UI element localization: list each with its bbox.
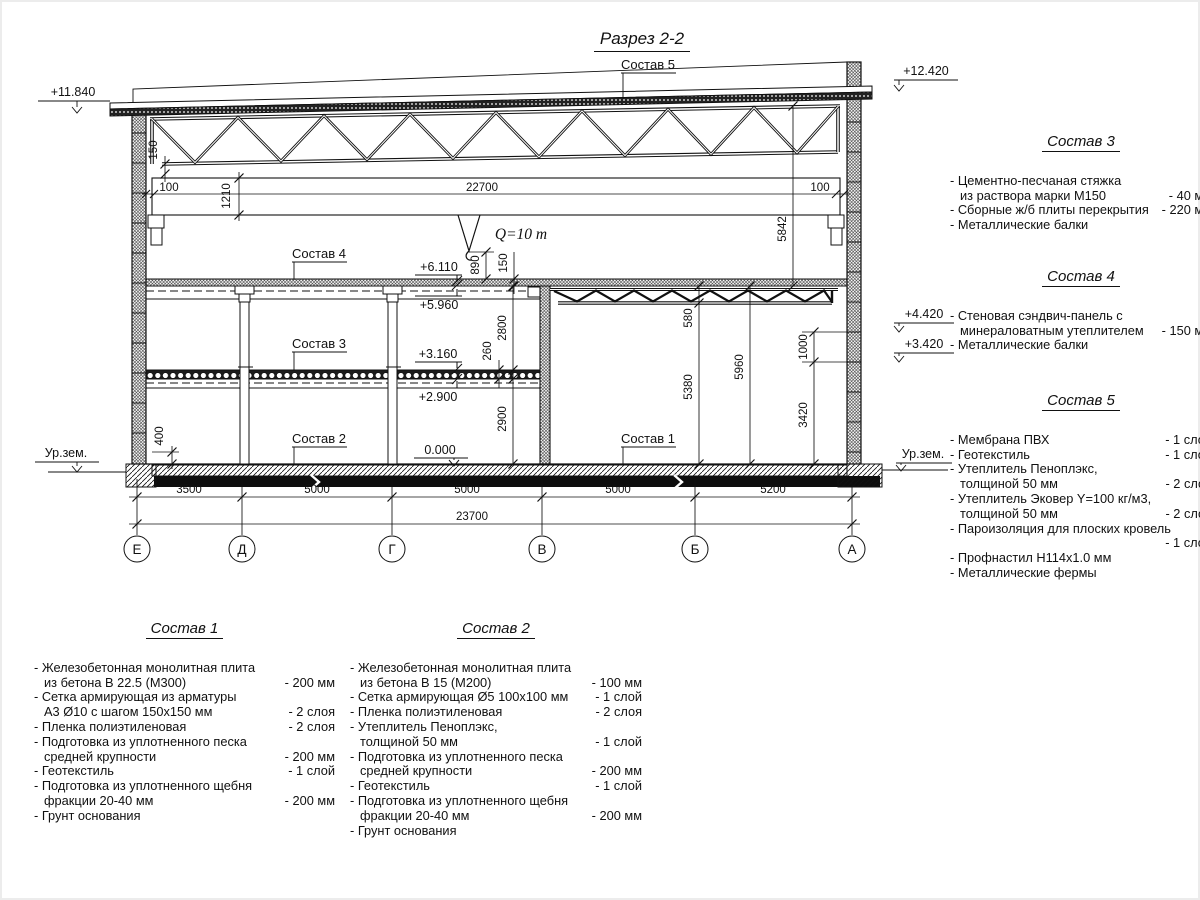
ground-slab-hatched (152, 465, 847, 476)
list-item: - Металлические балки (950, 218, 1200, 233)
list-item: - Сетка армирующая Ø5 100х100 мм- 1 слой (350, 690, 642, 705)
elev-roof-right: +12.420 (903, 64, 949, 78)
axis-label-A: А (847, 542, 856, 557)
elev-5960: +5.960 (420, 298, 459, 312)
composition-list-4: Состав 4 - Стеновая сэндвич-панель с мин… (950, 270, 1200, 353)
dim-3420: 3420 (798, 402, 810, 428)
dim-crane-gap-left: 100 (159, 182, 178, 194)
column-cap-D-2 (239, 294, 250, 302)
dim-260: 260 (482, 341, 494, 360)
dim-150-mid: 150 (498, 253, 510, 272)
footing-right (838, 464, 882, 487)
wall-B-corbel (528, 287, 540, 297)
ground-level-right: Ур.зем. (902, 447, 944, 461)
crane-console-right-1 (828, 215, 844, 228)
column-axis-G (388, 286, 397, 464)
list-item: - Пленка полиэтиленовая- 2 слоя (34, 720, 335, 735)
dim-crane-length: 22700 (466, 182, 498, 194)
dim-1000: 1000 (798, 334, 810, 360)
leader-sostav1: Состав 1 (621, 431, 675, 446)
list-item: - Профнастил Н114х1.0 мм (950, 551, 1200, 566)
dim-span-4: 5000 (605, 484, 631, 496)
list-item: - Мембрана ПВХ- 1 слой (950, 433, 1200, 448)
list-item: - Пароизоляция для плоских кровель- 1 сл… (950, 522, 1200, 552)
composition-4-title: Состав 4 (950, 270, 1200, 287)
column-axis-D (240, 286, 249, 464)
crane-console-right-2 (831, 228, 842, 245)
dim-1210: 1210 (221, 183, 233, 209)
slab-6110 (146, 279, 847, 286)
dim-5842: 5842 (777, 216, 789, 242)
axis-label-B: Б (691, 542, 700, 557)
axis-label-D: Д (237, 542, 246, 557)
list-item: - Утеплитель Пеноплэкс, толщиной 50 мм- … (350, 720, 642, 750)
list-item: - Утеплитель Пеноплэкс, толщиной 50 мм- … (950, 462, 1200, 492)
dim-crane-gap-right: 100 (810, 182, 829, 194)
list-item: - Грунт основания (350, 824, 642, 839)
dim-5380: 5380 (683, 374, 695, 400)
list-item: - Железобетонная монолитная плита из бет… (34, 661, 335, 691)
elev-arrow-roof-left (38, 101, 110, 113)
elev-arrow-wall-lower (894, 353, 954, 362)
dim-2900: 2900 (497, 406, 509, 432)
list-item: - Геотекстиль- 1 слой (950, 448, 1200, 463)
list-item: - Подготовка из уплотненного песка средн… (34, 735, 335, 765)
list-item: - Железобетонная монолитная плита из бет… (350, 661, 642, 691)
elev-6110: +6.110 (420, 260, 458, 274)
leader-lines (292, 73, 676, 465)
elev-zero: 0.000 (424, 443, 455, 457)
leader-sostav5: Состав 5 (621, 57, 675, 72)
low-truss-webs (554, 291, 832, 303)
list-item: - Подготовка из уплотненного песка средн… (350, 750, 642, 780)
list-item: - Геотекстиль- 1 слой (34, 764, 335, 779)
dim-890: 890 (470, 255, 482, 274)
crane-console-left-2 (151, 228, 162, 245)
elev-wall-upper: +4.420 (905, 307, 944, 321)
leader-sostav2: Состав 2 (292, 431, 346, 446)
list-item: - Геотекстиль- 1 слой (350, 779, 642, 794)
list-item: - Сборные ж/б плиты перекрытия- 220 мм (950, 203, 1200, 218)
elev-arrow-ground-left (35, 462, 99, 472)
main-truss (150, 106, 840, 164)
dim-span-2: 5000 (304, 484, 330, 496)
interior-wall-axis-B (540, 286, 550, 464)
elev-roof-left: +11.840 (51, 85, 96, 99)
ground-level-left: Ур.зем. (45, 446, 87, 460)
list-item: - Подготовка из уплотненного щебня фракц… (34, 779, 335, 809)
crane-hook (458, 215, 494, 260)
dim-150-left: 150 (148, 140, 160, 159)
axis-label-E: Е (132, 542, 141, 557)
crane-console-left-1 (148, 215, 164, 228)
elev-2900: +2.900 (419, 390, 458, 404)
axis-bubbles (124, 536, 865, 562)
dim-400: 400 (154, 426, 166, 445)
dim-total: 23700 (456, 511, 488, 523)
composition-1-title: Состав 1 (34, 622, 335, 639)
list-item: - Подготовка из уплотненного щебня фракц… (350, 794, 642, 824)
axis-extension-lines (137, 479, 852, 535)
crane-capacity-label: Q=10 т (495, 226, 547, 243)
leader-sostav3: Состав 3 (292, 336, 346, 351)
dim-2800: 2800 (497, 315, 509, 341)
list-item: - Утеплитель Эковер Y=100 кг/м3, толщино… (950, 492, 1200, 522)
composition-list-1: Состав 1 - Железобетонная монолитная пли… (34, 622, 335, 824)
dim-580: 580 (683, 308, 695, 327)
footing-left (126, 464, 156, 487)
composition-3-title: Состав 3 (950, 135, 1200, 152)
leader-sostav4: Состав 4 (292, 246, 346, 261)
list-item: - Грунт основания (34, 809, 335, 824)
elev-arrow-wall-upper (894, 323, 954, 332)
dim-5960: 5960 (734, 354, 746, 380)
dim-span-5: 5200 (760, 484, 786, 496)
list-item: - Сетка армирующая из арматуры А3 Ø10 с … (34, 690, 335, 720)
elev-arrow-roof-right (894, 80, 958, 91)
composition-2-title: Состав 2 (350, 622, 642, 639)
list-item: - Цементно-песчаная стяжка из раствора м… (950, 174, 1200, 204)
elev-3160: +3.160 (419, 347, 458, 361)
list-item: - Стеновая сэндвич-панель с минераловатн… (950, 309, 1200, 339)
dim-span-1: 3500 (176, 484, 202, 496)
composition-list-2: Состав 2 - Железобетонная монолитная пли… (350, 622, 642, 838)
axis-label-V: В (537, 542, 546, 557)
composition-list-5: Состав 5 - Мембрана ПВХ- 1 слой - Геотек… (950, 394, 1200, 581)
list-item: - Металлические балки (950, 338, 1200, 353)
slab-3160-hollow-core (146, 370, 540, 379)
axis-label-G: Г (388, 542, 396, 557)
list-item: - Пленка полиэтиленовая- 2 слоя (350, 705, 642, 720)
list-item: - Металлические фермы (950, 566, 1200, 581)
low-truss (550, 290, 838, 304)
hook-cables (458, 215, 480, 251)
dim-span-3: 5000 (454, 484, 480, 496)
composition-list-3: Состав 3 - Цементно-песчаная стяжка из р… (950, 135, 1200, 233)
composition-5-title: Состав 5 (950, 394, 1200, 411)
column-cap-G-2 (387, 294, 398, 302)
column-cap-G-1 (383, 286, 402, 294)
column-cap-D-1 (235, 286, 254, 294)
elev-wall-lower: +3.420 (905, 337, 944, 351)
